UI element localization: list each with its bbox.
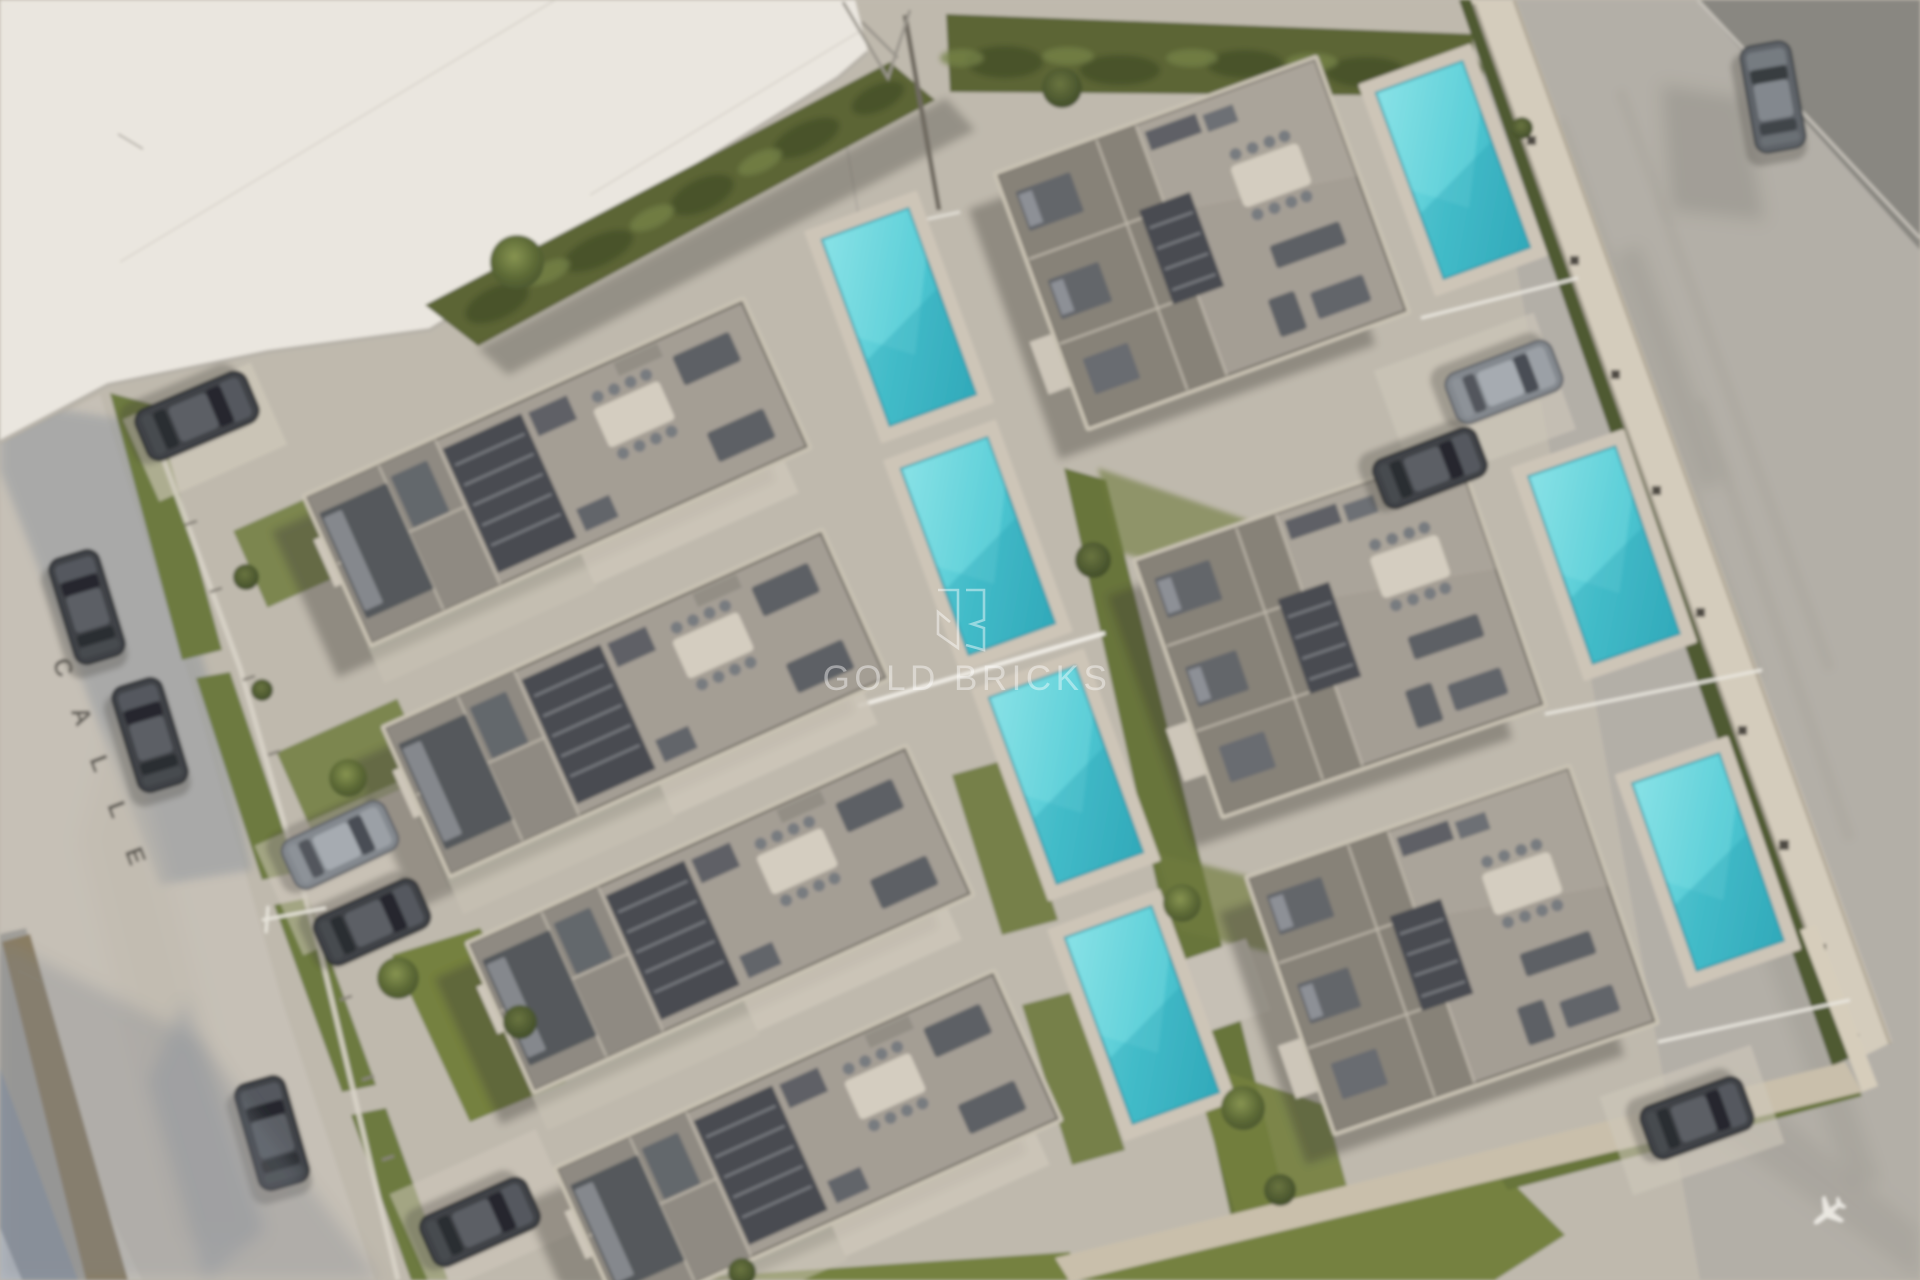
- svg-text:GOLD BRICKS: GOLD BRICKS: [823, 659, 1112, 698]
